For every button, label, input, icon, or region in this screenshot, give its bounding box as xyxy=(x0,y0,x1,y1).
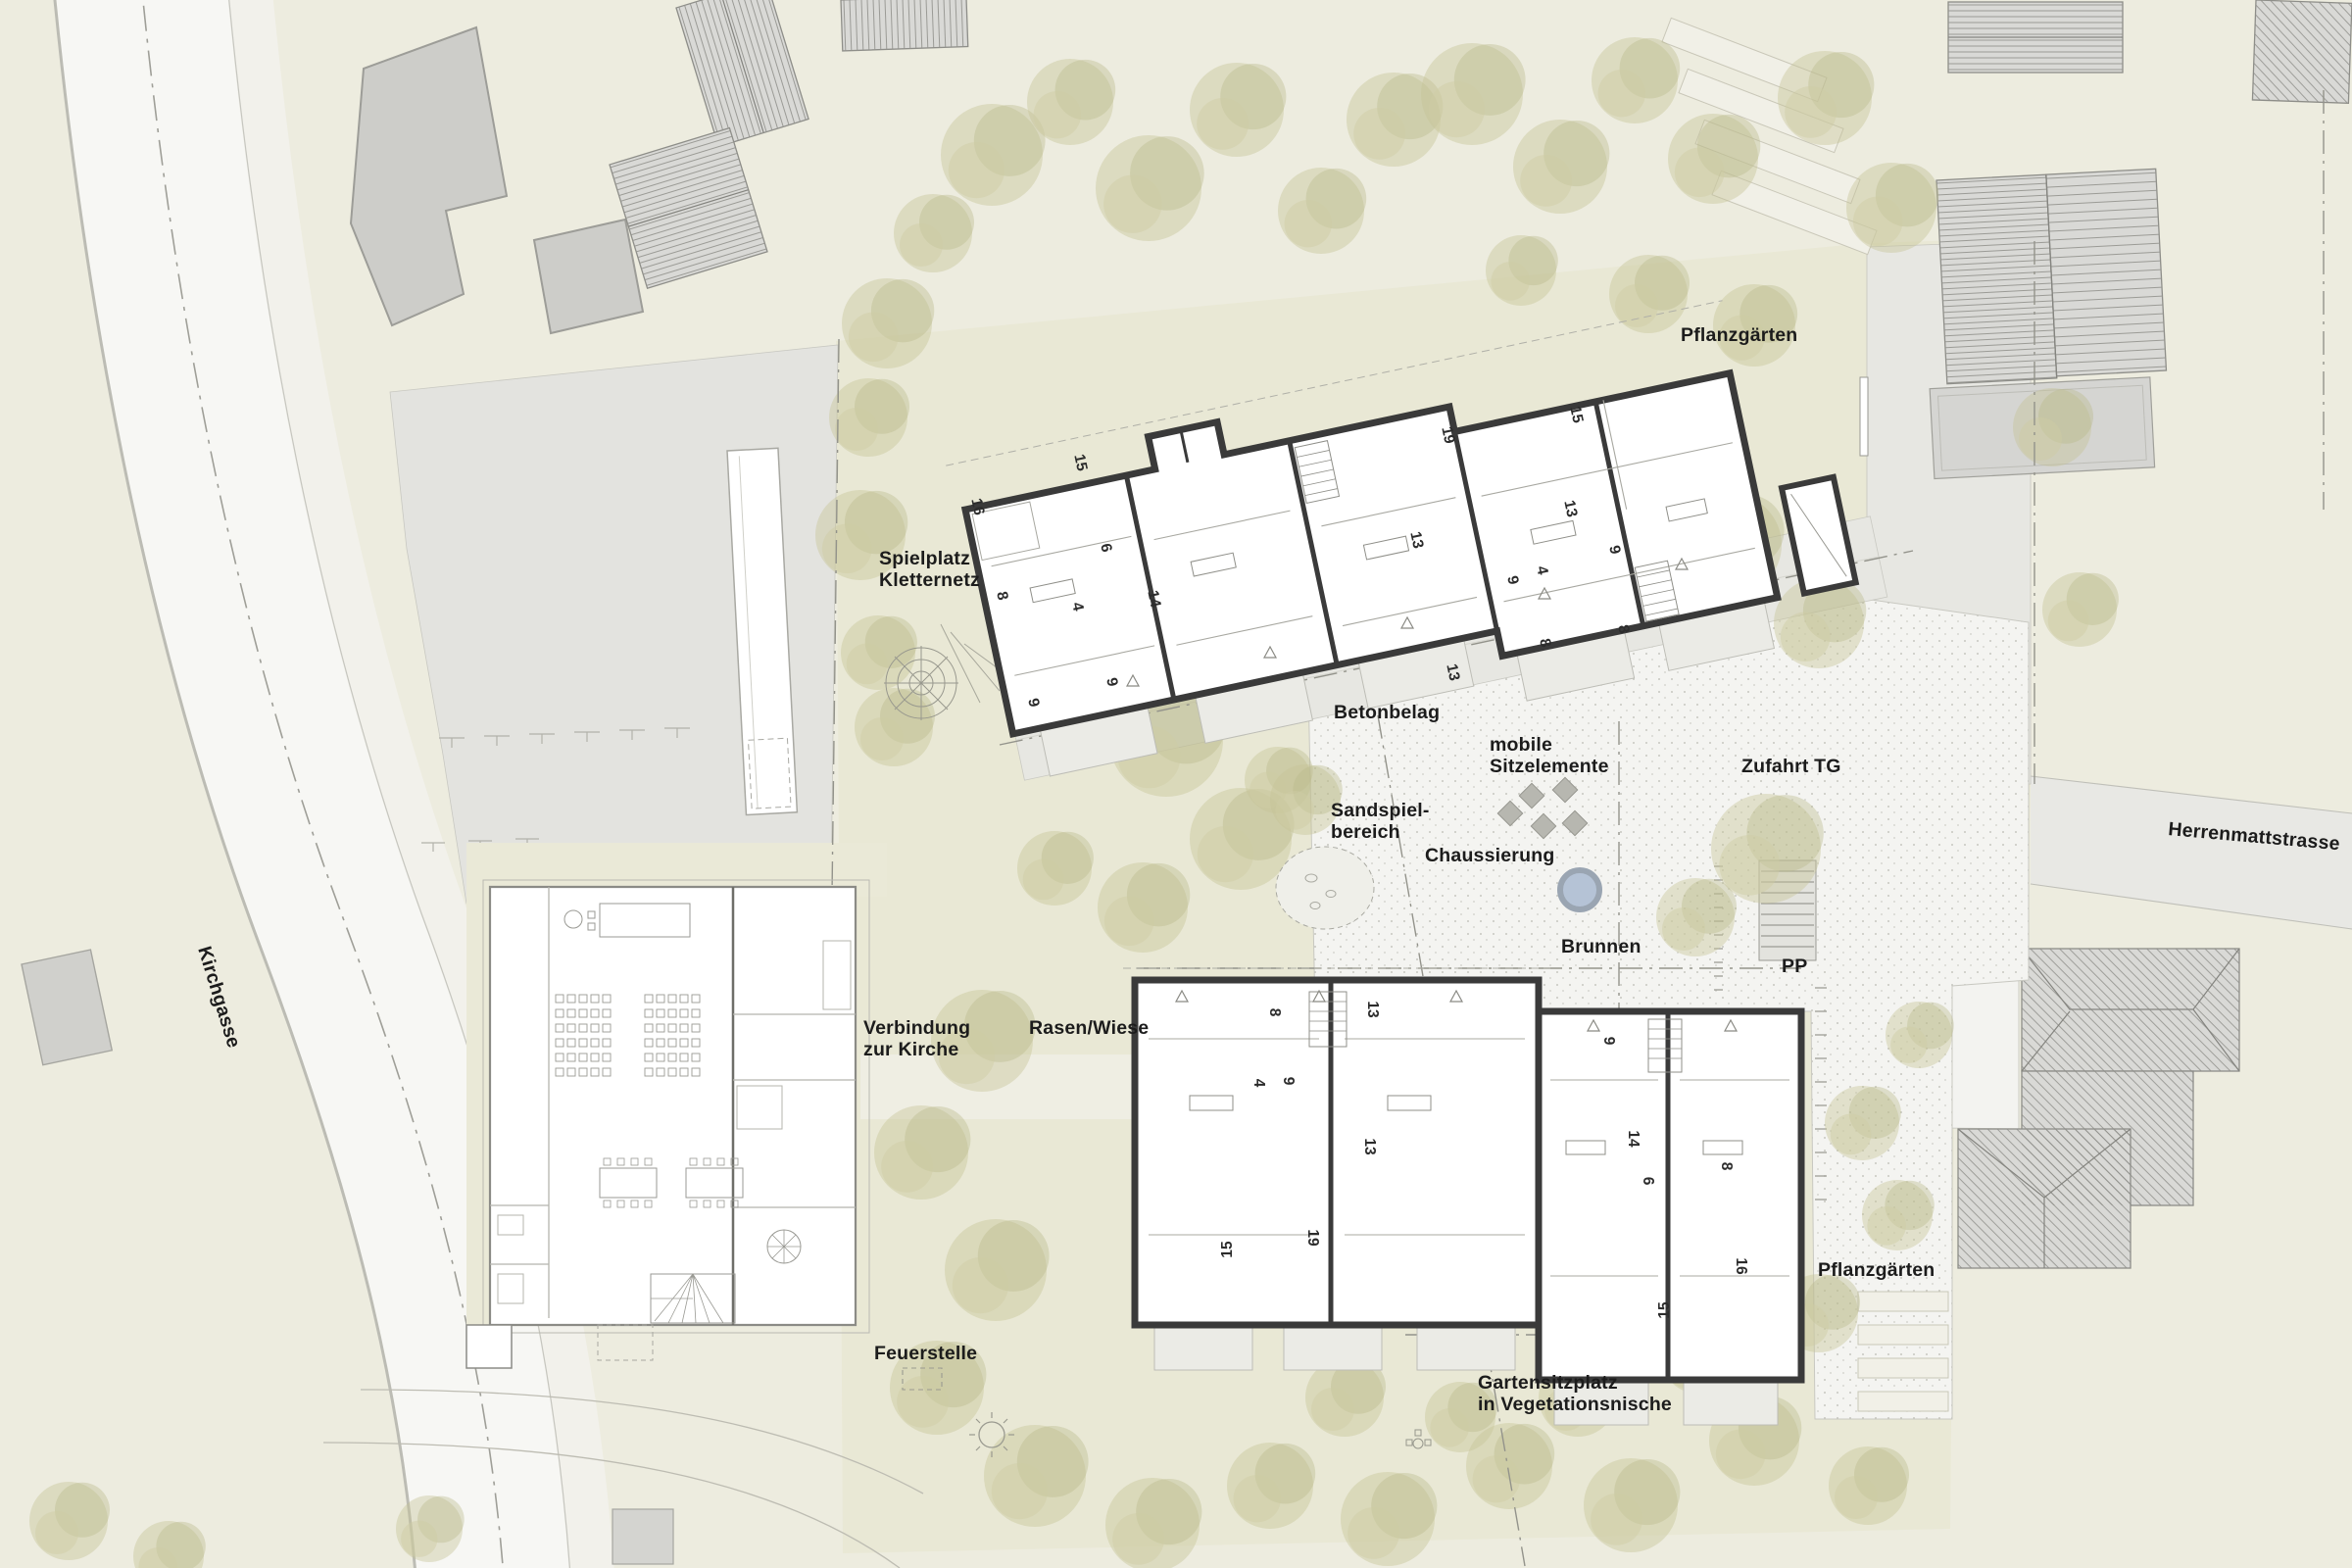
unit-number: 16 xyxy=(1733,1257,1749,1275)
church-building xyxy=(466,880,869,1368)
parking-area xyxy=(390,345,838,904)
existing-pitched-roof-building xyxy=(2252,0,2352,103)
label-chaussierung: Chaussierung xyxy=(1425,845,1554,866)
label-zufahrt-tg: Zufahrt TG xyxy=(1741,756,1841,777)
label-rasen-wiese: Rasen/Wiese xyxy=(1029,1017,1149,1039)
label-betonbelag: Betonbelag xyxy=(1334,702,1440,723)
unit-number: 13 xyxy=(1361,1138,1378,1155)
label-pflanzgaerten-nord: Pflanzgärten xyxy=(1681,324,1797,346)
fountain-brunnen xyxy=(1560,870,1599,909)
unit-number: 9 xyxy=(1280,1077,1297,1086)
label-feuerstelle: Feuerstelle xyxy=(874,1343,977,1364)
existing-pitched-roof-building xyxy=(841,0,968,51)
residential-building-south-left xyxy=(1123,968,1550,1370)
residential-building-south-right xyxy=(1539,1011,1801,1425)
label-spielplatz-kletternetz: SpielplatzKletternetz xyxy=(879,548,980,591)
existing-flat-roof-building xyxy=(534,220,643,333)
unit-number: 13 xyxy=(1364,1001,1381,1018)
existing-small-building xyxy=(612,1509,673,1564)
unit-number: 15 xyxy=(1219,1241,1236,1258)
unit-number: 8 xyxy=(1718,1162,1735,1171)
label-verbindung-zur-kirche: Verbindungzur Kirche xyxy=(863,1017,970,1060)
site-plan-canvas: 1615864149919139481315139881349131519914… xyxy=(0,0,2352,1568)
label-brunnen: Brunnen xyxy=(1561,936,1641,957)
guardrail xyxy=(1860,377,1868,456)
unit-number: 14 xyxy=(1625,1130,1641,1148)
sandpit xyxy=(1276,847,1374,929)
tree xyxy=(1105,1478,1201,1568)
unit-number: 4 xyxy=(1250,1079,1267,1088)
site-plan-page: 1615864149919139481315139881349131519914… xyxy=(0,0,2352,1568)
unit-number: 6 xyxy=(1640,1177,1656,1186)
unit-number: 19 xyxy=(1304,1229,1321,1247)
label-pp: PP xyxy=(1782,955,1807,977)
unit-number: 9 xyxy=(1600,1037,1617,1046)
unit-number: 8 xyxy=(1266,1008,1283,1017)
existing-pitched-roof-building xyxy=(1948,2,2123,73)
label-pflanzgaerten-sued: Pflanzgärten xyxy=(1818,1259,1935,1281)
unit-number: 15 xyxy=(1656,1301,1673,1319)
